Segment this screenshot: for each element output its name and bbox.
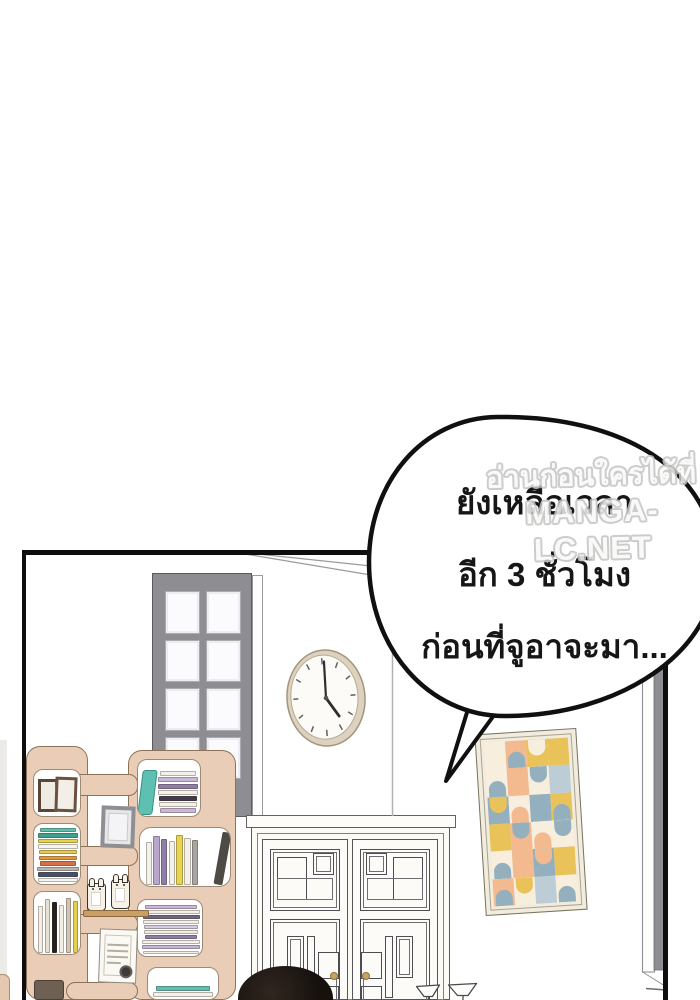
door-pane (165, 640, 200, 683)
book-spine (158, 784, 198, 789)
book-spine (38, 844, 77, 848)
bunny-eye-icon (92, 888, 94, 890)
picture-frame (54, 777, 77, 813)
photo-frame (100, 805, 135, 848)
bookend (137, 770, 158, 815)
book-spine (45, 899, 51, 953)
maze-square-inner (316, 856, 331, 872)
shelf-cell (33, 769, 81, 817)
art-semicircle-motif (516, 877, 534, 894)
clock-tick (307, 664, 310, 670)
door-jamb-highlight (252, 575, 263, 817)
bookshelf-connector (66, 982, 138, 1000)
bunny-eye-icon (123, 884, 125, 886)
art-semicircle-motif (558, 886, 576, 903)
clock-tick (346, 676, 351, 679)
certificate-text-line (107, 962, 121, 964)
book-spine (184, 838, 191, 885)
bunny-frame-photo (91, 892, 101, 906)
book-spine (161, 839, 168, 885)
art-tile (547, 738, 570, 767)
art-semicircle-motif (554, 819, 572, 836)
art-tile (554, 847, 577, 876)
book-spine (142, 910, 200, 914)
art-tile (484, 741, 507, 770)
door-pane (206, 591, 241, 634)
book-spine (176, 835, 183, 885)
panel-border-left (22, 550, 27, 1000)
book-spine (143, 920, 199, 924)
photo-frame-inner (108, 813, 129, 842)
art-semicircle-motif (488, 780, 506, 797)
cabinet-door-pattern (353, 840, 437, 999)
right-doorframe-face (643, 658, 655, 972)
clock-ticks (291, 656, 359, 738)
clock-tick (348, 712, 353, 715)
art-tile (552, 819, 575, 848)
door-pane (165, 688, 200, 731)
book-spine (153, 836, 160, 885)
book-spine (38, 839, 78, 843)
page-edge-object (0, 974, 10, 1000)
goblet-icon (449, 984, 477, 996)
book-row (37, 896, 79, 953)
book-spine (52, 902, 58, 953)
art-tile (513, 877, 536, 906)
shelf-cell (33, 891, 81, 955)
bunny-photo-frame (111, 879, 130, 909)
maze-bar-inner (399, 939, 410, 975)
medal-seal-icon (119, 965, 132, 978)
clock-tick (339, 724, 342, 730)
art-semicircle-motif (511, 806, 529, 823)
bunny-eye-icon (99, 888, 101, 890)
ceiling-line (248, 553, 371, 566)
hour-hand (326, 697, 339, 717)
book-spine (159, 796, 197, 801)
maze-square-inner (369, 856, 384, 872)
book-spine (158, 790, 197, 795)
certificate-frame (98, 928, 138, 983)
book-spine (143, 915, 200, 919)
shelf-cell (33, 823, 81, 885)
book-spine (142, 940, 201, 944)
bunny-eye-icon (116, 884, 118, 886)
book-spine (158, 777, 199, 782)
book-stack (152, 974, 214, 998)
book-row (145, 833, 217, 885)
art-tile (508, 795, 531, 824)
art-semicircle-motif (494, 862, 512, 879)
clock-center (324, 696, 329, 701)
dark-book-stack (34, 980, 64, 1000)
cabinet-knob (362, 972, 370, 980)
maze-shape (277, 878, 333, 900)
clock-face (288, 653, 361, 741)
book-spine (142, 945, 200, 949)
book-spine (160, 808, 197, 813)
watermark-site-name: MANGA-LC.NET (476, 490, 700, 570)
clock-tick (335, 662, 338, 668)
bunny-photo-frame (87, 883, 106, 911)
panel-border-right (663, 645, 668, 1000)
bunny-ear-icon (122, 874, 128, 883)
book-spine (39, 856, 76, 860)
art-tile (486, 769, 509, 798)
bunny-frame-photo (115, 888, 125, 902)
book-spine (146, 842, 153, 885)
art-tile (526, 739, 549, 768)
book-spine (159, 802, 196, 807)
minute-hand (323, 661, 326, 698)
book-spine (40, 861, 77, 865)
book-spine (160, 771, 196, 776)
book-spine (156, 986, 209, 991)
clock-tick (299, 715, 304, 718)
art-semicircle-motif (535, 848, 553, 865)
book-stack (157, 764, 199, 814)
shelf-cell (137, 899, 203, 957)
art-semicircle-motif (508, 752, 526, 769)
book-spine (192, 840, 199, 885)
wooden-ledge (83, 910, 149, 917)
art-tile (531, 821, 554, 850)
book-stack (37, 827, 79, 883)
page-edge-sliver (0, 740, 7, 1000)
book-spine (40, 828, 76, 832)
clock-tick (296, 679, 301, 682)
cabinet-knob (330, 972, 338, 980)
book-stack (141, 904, 201, 955)
book-spine (169, 841, 176, 885)
art-tile (533, 848, 556, 877)
book-spine (153, 992, 213, 997)
art-tile (550, 792, 573, 821)
bunny-ear-icon (89, 878, 95, 887)
shelf-cell (147, 967, 219, 1000)
bunny-ear-icon (98, 878, 104, 887)
art-semicircle-motif (512, 822, 530, 839)
clock-rim (284, 647, 369, 748)
door-pane (206, 640, 241, 683)
book-spine (38, 878, 77, 882)
shelf-cell (137, 759, 201, 817)
art-semicircle-motif (530, 766, 548, 783)
art-tile (507, 767, 530, 796)
art-tile (491, 851, 514, 880)
art-tile (528, 766, 551, 795)
shelf-cell (139, 827, 231, 887)
book-spine (37, 867, 78, 871)
art-tile (510, 822, 533, 851)
book-spine (143, 951, 199, 955)
art-tile (489, 823, 512, 852)
book-spine (38, 872, 78, 876)
art-semicircle-motif (528, 739, 546, 756)
art-tile (505, 740, 528, 769)
book-spine (144, 925, 199, 929)
art-tile (534, 875, 557, 904)
clock-tick (311, 726, 314, 732)
bunny-ear-icon (113, 874, 119, 883)
book-spine (38, 833, 79, 837)
door-pane (165, 591, 200, 634)
book-spine (144, 930, 197, 934)
speech-text-line: ก่อนที่จูอาจะมา... (372, 620, 700, 673)
art-semicircle-motif (495, 889, 513, 906)
cabinet-door-right (352, 839, 438, 1000)
ceiling-line (248, 555, 371, 576)
art-tile (555, 874, 578, 903)
wall-art-frame (474, 728, 587, 916)
art-tile (493, 878, 516, 907)
art-semicircle-motif (553, 804, 571, 821)
wall-art-pattern (484, 738, 578, 907)
book-spine (66, 898, 72, 953)
door-pane (206, 688, 241, 731)
art-tile (529, 793, 552, 822)
art-tile (487, 796, 510, 825)
wall-clock (284, 647, 369, 748)
maze-shape (367, 878, 423, 900)
book-spine (145, 935, 197, 939)
maze-rect (361, 986, 382, 1000)
art-semicircle-motif (534, 832, 552, 849)
art-semicircle-motif (489, 796, 507, 813)
panel-border-top (22, 550, 374, 555)
webtoon-page: ยังเหลือเวลา อีก 3 ชั่วโมง ก่อนที่จูอาจะ… (0, 0, 700, 1000)
art-tile (549, 765, 572, 794)
book-spine (59, 905, 65, 953)
book-spine (39, 850, 77, 854)
site-watermark: อ่านก่อนใครได้ที่ MANGA-LC.NET (475, 457, 700, 570)
book-spine (73, 901, 79, 953)
art-tile (512, 849, 535, 878)
book-spine (38, 906, 44, 953)
maze-bar (385, 936, 393, 998)
doorframe-base-line (643, 972, 666, 986)
book-spine (145, 905, 197, 909)
